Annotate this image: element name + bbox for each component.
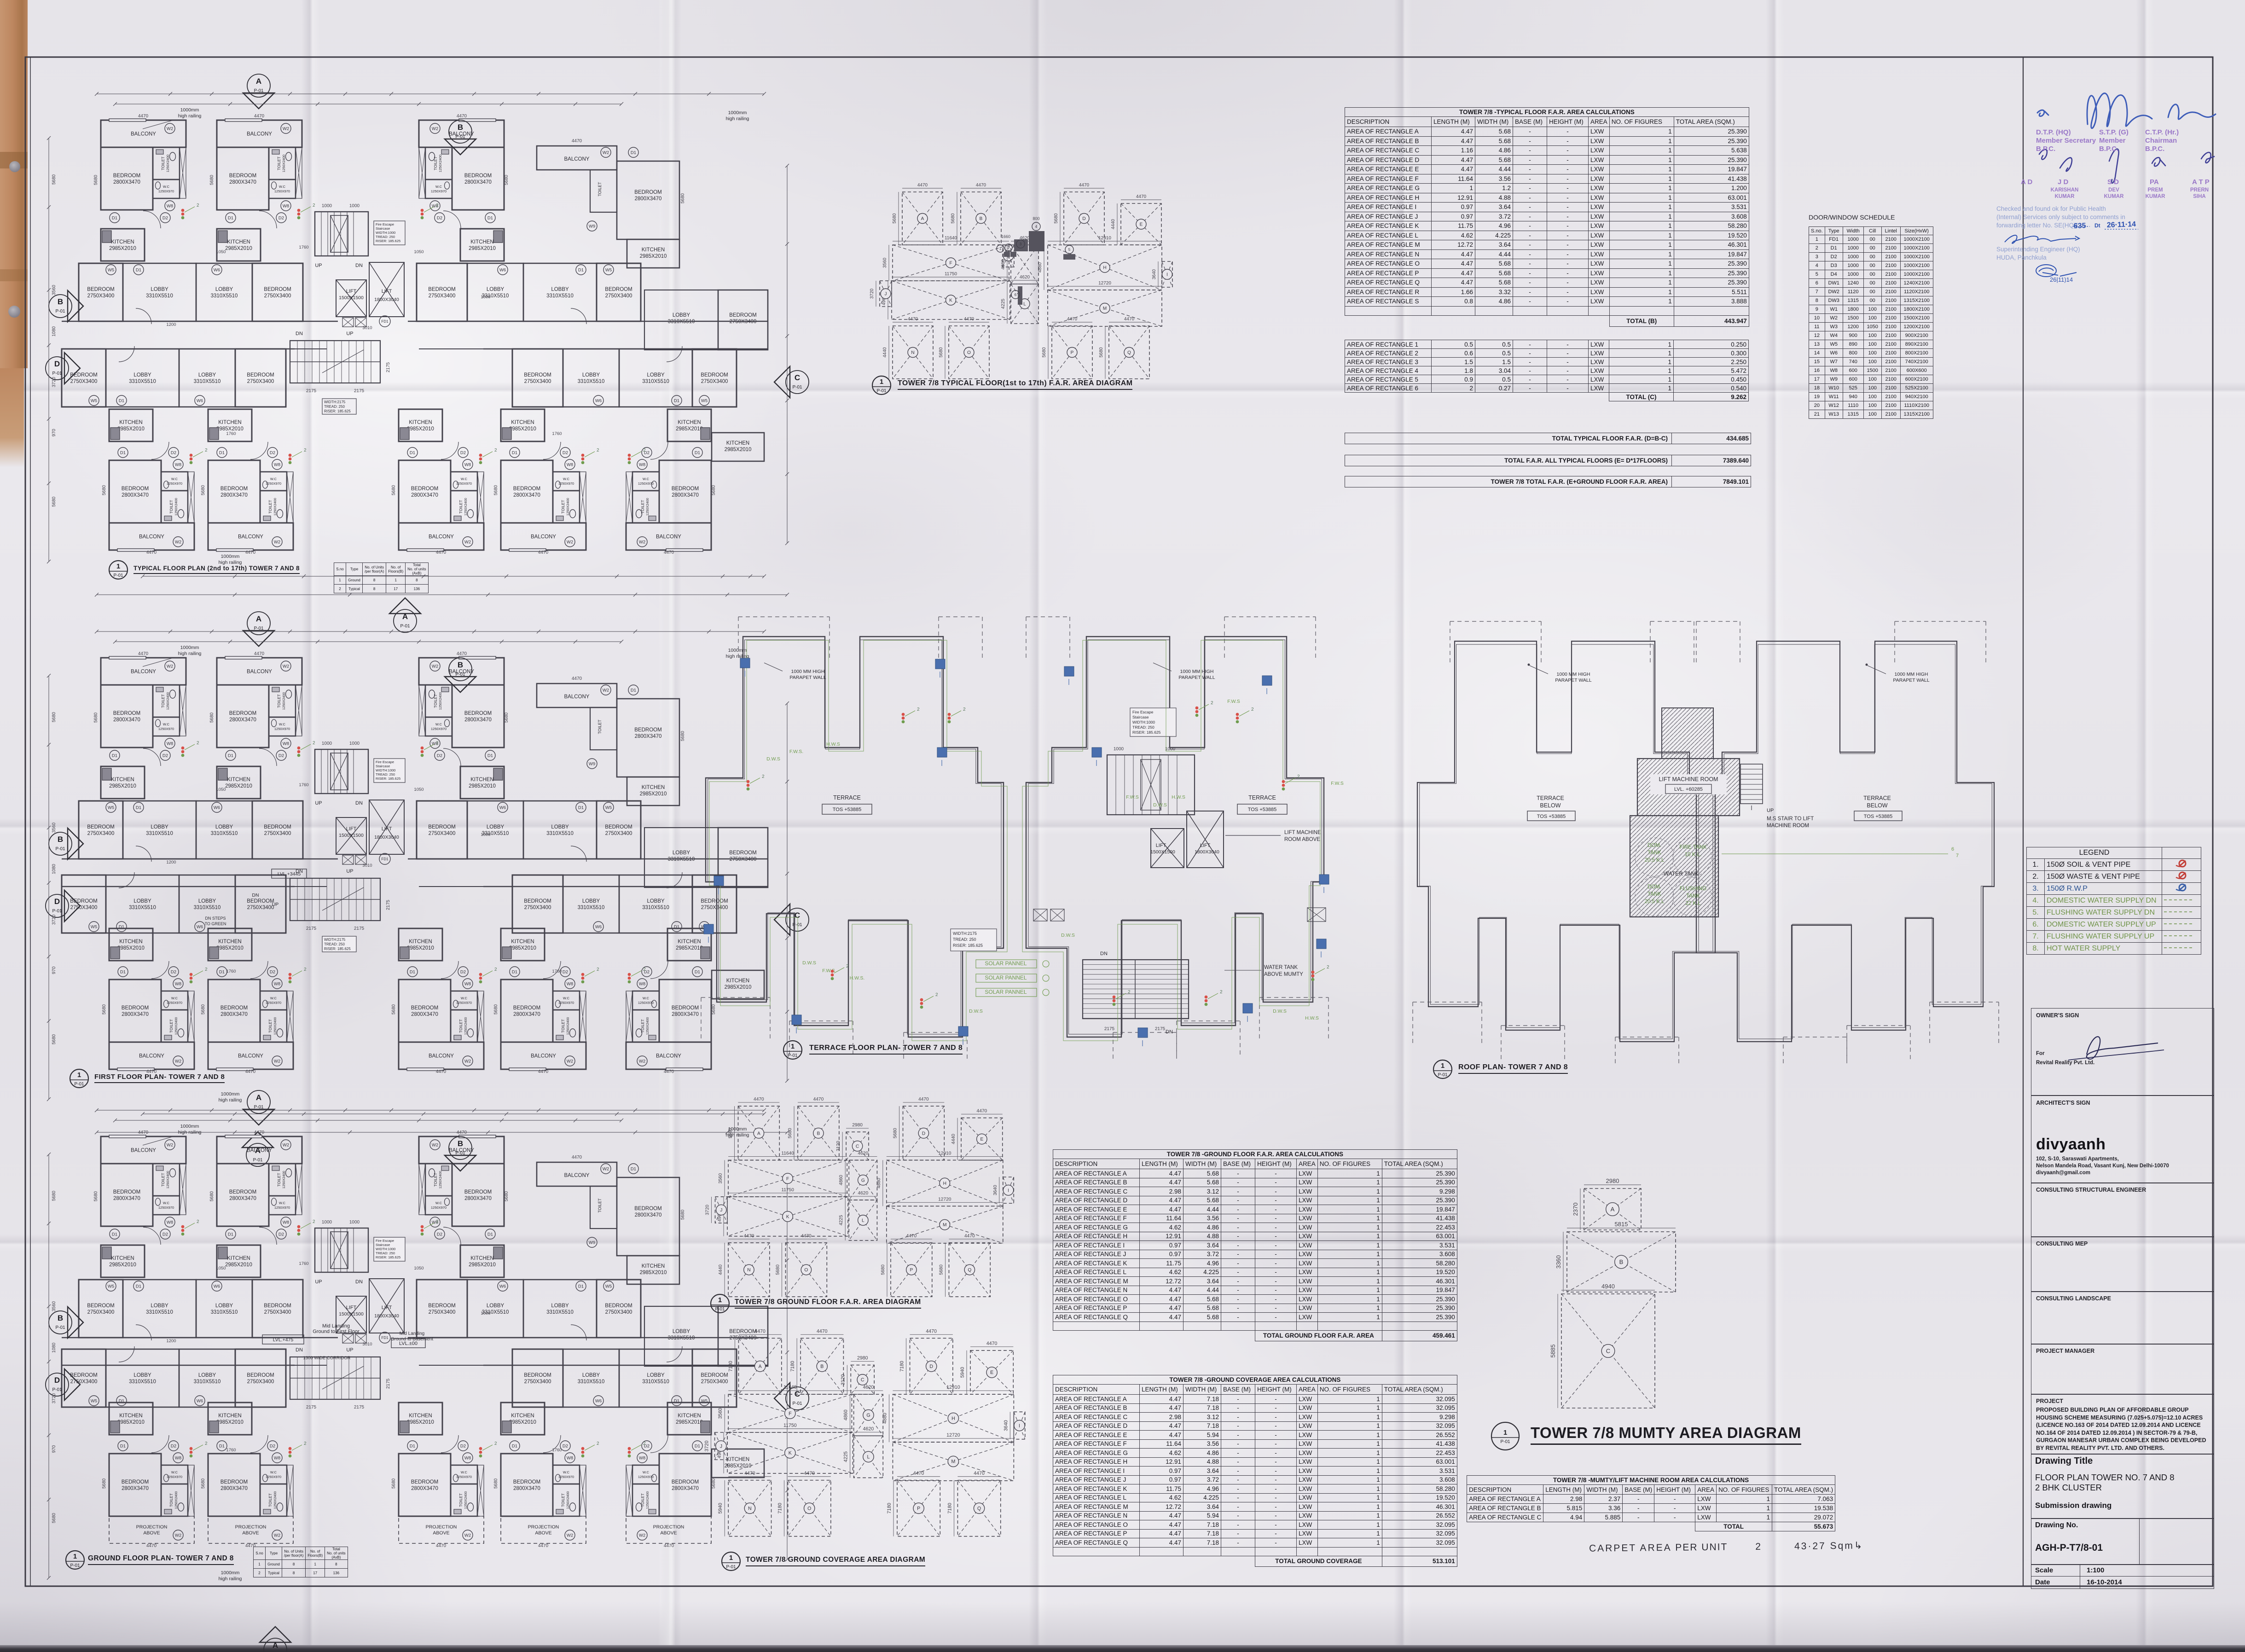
svg-text:BEDROOM: BEDROOM	[634, 190, 661, 195]
svg-text:W9: W9	[589, 224, 595, 229]
svg-text:Q: Q	[977, 1506, 981, 1511]
svg-text:TOILET: TOILET	[561, 1019, 565, 1033]
svg-text:5680: 5680	[776, 1264, 781, 1275]
svg-text:TREAD: 250: TREAD: 250	[376, 1251, 395, 1255]
svg-text:4470: 4470	[254, 114, 265, 119]
svg-text:SOLAR PANNEL: SOLAR PANNEL	[985, 974, 1027, 981]
svg-text:1250X2400: 1250X2400	[174, 1491, 178, 1509]
svg-text:H: H	[943, 1181, 946, 1186]
svg-text:11750: 11750	[783, 1423, 797, 1428]
svg-text:A: A	[1611, 1206, 1615, 1213]
svg-text:DOM.: DOM.	[1647, 843, 1661, 848]
svg-text:G: G	[866, 1413, 870, 1418]
svg-text:LOBBY: LOBBY	[215, 1303, 233, 1309]
svg-text:2750X3400: 2750X3400	[524, 1379, 551, 1385]
svg-text:5680: 5680	[680, 730, 685, 741]
svg-text:C: C	[795, 373, 800, 382]
svg-text:I: I	[1019, 1423, 1020, 1429]
svg-text:F.W.S: F.W.S	[1331, 781, 1343, 786]
svg-text:BEDROOM: BEDROOM	[264, 824, 291, 830]
svg-text:11640: 11640	[783, 1385, 797, 1390]
svg-text:4470: 4470	[964, 1234, 975, 1239]
svg-text:PROJECTION: PROJECTION	[136, 1524, 168, 1530]
svg-text:H.W.S: H.W.S	[1305, 1015, 1319, 1021]
svg-text:5680: 5680	[893, 1128, 898, 1138]
svg-text:5940: 5940	[718, 1503, 723, 1514]
svg-text:4470: 4470	[906, 1234, 917, 1239]
svg-text:D1: D1	[219, 969, 225, 974]
svg-text:W2: W2	[283, 664, 289, 669]
svg-text:2800X3470: 2800X3470	[113, 1196, 140, 1201]
svg-text:W2: W2	[567, 539, 573, 545]
svg-text:BEDROOM: BEDROOM	[729, 1329, 756, 1334]
svg-text:TOILET: TOILET	[640, 1493, 645, 1507]
svg-text:BEDROOM: BEDROOM	[524, 1373, 551, 1378]
svg-text:4470: 4470	[245, 1069, 256, 1074]
svg-text:2: 2	[917, 707, 920, 712]
svg-text:F: F	[949, 261, 952, 266]
svg-text:BEDROOM: BEDROOM	[113, 173, 140, 179]
svg-text:high railing: high railing	[178, 651, 202, 656]
svg-text:1250X2400: 1250X2400	[566, 1491, 570, 1509]
svg-text:KITCHEN: KITCHEN	[642, 1264, 665, 1269]
svg-text:UP: UP	[346, 331, 353, 336]
svg-text:1000mm: 1000mm	[180, 645, 199, 650]
svg-text:PROJECTION: PROJECTION	[528, 1524, 559, 1530]
svg-text:4470: 4470	[572, 676, 582, 681]
svg-text:7180: 7180	[947, 1503, 952, 1514]
svg-text:TREAD: 250: TREAD: 250	[376, 235, 395, 239]
svg-text:2800X3470: 2800X3470	[229, 1196, 256, 1201]
svg-text:1000: 1000	[481, 1311, 490, 1316]
svg-text:D2: D2	[278, 215, 284, 220]
svg-text:D1: D1	[219, 450, 225, 455]
svg-text:BALCONY: BALCONY	[139, 534, 164, 540]
svg-text:2: 2	[197, 203, 199, 208]
svg-text:970: 970	[52, 1445, 57, 1453]
svg-text:BALCONY: BALCONY	[247, 132, 272, 137]
svg-text:2985X2010: 2985X2010	[225, 246, 252, 251]
svg-text:2800X3470: 2800X3470	[672, 1012, 699, 1017]
svg-text:2: 2	[597, 448, 599, 453]
svg-text:1250X2400: 1250X2400	[464, 498, 468, 516]
svg-text:W2: W2	[175, 1533, 181, 1538]
svg-text:W8: W8	[274, 1455, 280, 1461]
svg-text:1050: 1050	[216, 1266, 226, 1271]
svg-text:2750X3400: 2750X3400	[701, 379, 728, 384]
svg-text:H: H	[951, 1416, 955, 1421]
svg-text:Q: Q	[968, 1268, 971, 1273]
svg-text:P-01: P-01	[52, 909, 62, 914]
svg-text:2: 2	[846, 964, 849, 969]
svg-text:4470: 4470	[917, 183, 928, 188]
svg-text:1760: 1760	[226, 431, 236, 436]
svg-text:5680: 5680	[788, 1128, 793, 1138]
svg-text:2800X3470: 2800X3470	[411, 493, 438, 498]
svg-text:Ground to Basement: Ground to Basement	[391, 1337, 433, 1342]
svg-text:A: A	[759, 1364, 762, 1369]
svg-text:1760: 1760	[552, 969, 562, 974]
svg-text:FD1: FD1	[381, 319, 389, 324]
svg-text:1000: 1000	[1114, 747, 1124, 752]
svg-text:Mid Landing: Mid Landing	[322, 1323, 350, 1329]
svg-text:F.W.S.: F.W.S.	[789, 749, 803, 754]
svg-text:4470: 4470	[1124, 317, 1135, 322]
svg-text:W6: W6	[499, 805, 506, 810]
svg-text:1250X970: 1250X970	[431, 1206, 447, 1210]
svg-text:5680: 5680	[93, 1191, 99, 1201]
svg-text:4470: 4470	[1136, 194, 1147, 199]
svg-text:2800X3470: 2800X3470	[411, 1486, 438, 1491]
svg-text:2175: 2175	[386, 899, 391, 910]
svg-text:3310X5510: 3310X5510	[642, 379, 669, 384]
svg-text:Fire Escape: Fire Escape	[376, 1239, 394, 1243]
svg-text:2: 2	[436, 203, 439, 208]
svg-text:BALCONY: BALCONY	[131, 1148, 156, 1154]
svg-text:KITCHEN: KITCHEN	[511, 1413, 534, 1419]
svg-text:2750X3400: 2750X3400	[605, 1310, 632, 1315]
svg-text:W.C: W.C	[643, 996, 650, 1000]
svg-text:6: 6	[1015, 293, 1017, 297]
svg-text:D1: D1	[695, 1443, 700, 1449]
svg-text:4880: 4880	[1038, 262, 1043, 272]
svg-text:2800X3470: 2800X3470	[113, 717, 140, 723]
svg-text:TOS +53885: TOS +53885	[833, 807, 861, 812]
svg-text:W6: W6	[214, 267, 220, 272]
svg-text:2750X3400: 2750X3400	[87, 831, 115, 836]
svg-text:Staircase: Staircase	[376, 226, 390, 231]
svg-text:E: E	[990, 1370, 993, 1375]
svg-text:D2: D2	[437, 753, 442, 758]
svg-text:TERRACE: TERRACE	[1863, 795, 1891, 801]
svg-text:2750X3400: 2750X3400	[264, 293, 291, 299]
svg-text:1250X970: 1250X970	[274, 189, 290, 193]
svg-text:P: P	[1071, 350, 1074, 355]
svg-text:P-01: P-01	[792, 1401, 802, 1406]
svg-text:BALCONY: BALCONY	[564, 157, 590, 162]
svg-text:K: K	[789, 1450, 792, 1456]
svg-text:2980: 2980	[1606, 1177, 1619, 1184]
svg-text:3310X5510: 3310X5510	[194, 905, 221, 910]
svg-text:W8: W8	[283, 1220, 289, 1225]
svg-text:W.C: W.C	[163, 1201, 170, 1205]
svg-text:1250X2400: 1250X2400	[464, 1017, 468, 1035]
svg-text:A: A	[921, 216, 924, 221]
svg-text:D1: D1	[410, 450, 415, 455]
svg-text:5680: 5680	[52, 712, 57, 722]
svg-text:BALCONY: BALCONY	[564, 1173, 590, 1178]
svg-text:DN: DN	[1166, 1029, 1173, 1035]
svg-text:1760: 1760	[299, 1261, 308, 1266]
svg-text:PROJECTION: PROJECTION	[653, 1524, 685, 1530]
svg-text:2800X3470: 2800X3470	[113, 180, 140, 185]
svg-text:2985X2010: 2985X2010	[109, 783, 136, 789]
svg-text:W.C: W.C	[279, 1201, 286, 1205]
svg-text:4470: 4470	[976, 183, 986, 188]
svg-text:A: A	[256, 77, 261, 86]
svg-text:1200: 1200	[166, 1339, 176, 1344]
svg-text:W8: W8	[567, 462, 573, 467]
svg-text:TOILET: TOILET	[561, 1493, 565, 1507]
svg-text:2985X2010: 2985X2010	[109, 246, 136, 251]
svg-text:ROOM ABOVE: ROOM ABOVE	[1284, 837, 1320, 842]
svg-text:TANK: TANK	[1686, 893, 1700, 899]
svg-text:P-01: P-01	[70, 1563, 80, 1568]
svg-text:2: 2	[643, 967, 646, 972]
svg-text:BEDROOM: BEDROOM	[87, 287, 114, 292]
svg-text:D2: D2	[278, 753, 284, 758]
svg-text:BEDROOM: BEDROOM	[264, 1303, 291, 1309]
svg-text:4470: 4470	[744, 1471, 755, 1476]
svg-text:4470: 4470	[744, 1234, 754, 1239]
svg-text:FD1: FD1	[381, 1336, 389, 1340]
svg-text:W.C: W.C	[461, 477, 468, 481]
svg-text:2: 2	[1220, 990, 1223, 995]
svg-text:7180: 7180	[777, 1503, 783, 1514]
svg-text:BEDROOM: BEDROOM	[634, 727, 661, 733]
svg-text:1000: 1000	[349, 203, 360, 209]
svg-text:1250X2400: 1250X2400	[282, 692, 286, 710]
svg-text:D1: D1	[410, 969, 415, 974]
svg-text:W6: W6	[197, 398, 203, 403]
svg-text:1050: 1050	[216, 249, 226, 255]
svg-text:D1: D1	[578, 267, 584, 272]
svg-text:KITCHEN: KITCHEN	[470, 777, 493, 783]
svg-text:TANK: TANK	[1647, 850, 1661, 856]
svg-text:H.W.S: H.W.S	[1172, 794, 1185, 800]
svg-text:BALCONY: BALCONY	[238, 1054, 263, 1059]
svg-text:BEDROOM: BEDROOM	[605, 287, 632, 292]
svg-text:W6: W6	[214, 805, 220, 810]
svg-text:2: 2	[436, 741, 439, 746]
svg-text:L: L	[862, 1218, 864, 1223]
svg-text:1250X2400: 1250X2400	[273, 1491, 277, 1509]
svg-text:4470: 4470	[977, 1109, 987, 1114]
svg-text:D.W.S: D.W.S	[1061, 933, 1075, 938]
svg-text:LIFT: LIFT	[382, 826, 392, 832]
svg-text:4225: 4225	[1001, 298, 1006, 309]
svg-text:1760: 1760	[226, 969, 236, 974]
svg-text:KITCHEN: KITCHEN	[409, 1413, 432, 1419]
svg-text:5680: 5680	[504, 174, 509, 185]
svg-text:W8: W8	[274, 981, 280, 986]
svg-text:W.C: W.C	[461, 996, 468, 1000]
svg-text:1000: 1000	[349, 1220, 360, 1225]
svg-text:D1: D1	[228, 215, 233, 220]
svg-text:BEDROOM: BEDROOM	[513, 1479, 540, 1485]
svg-text:W8: W8	[639, 981, 645, 986]
svg-text:J: J	[720, 1208, 722, 1213]
svg-text:DN: DN	[296, 331, 303, 336]
svg-text:2800X3470: 2800X3470	[513, 1486, 540, 1491]
svg-text:3120: 3120	[836, 1141, 841, 1151]
svg-text:2800X3470: 2800X3470	[513, 1012, 540, 1017]
svg-text:W.C: W.C	[643, 1470, 650, 1474]
svg-text:D1: D1	[112, 753, 117, 758]
svg-text:Ground to First Floor: Ground to First Floor	[313, 1329, 360, 1334]
svg-text:4440: 4440	[951, 1134, 956, 1144]
svg-text:RISER: 185.625: RISER: 185.625	[376, 239, 400, 243]
svg-text:W.C: W.C	[435, 722, 442, 726]
svg-text:BELOW: BELOW	[1540, 802, 1560, 809]
svg-text:2985X2010: 2985X2010	[469, 783, 496, 789]
svg-text:W5: W5	[91, 398, 97, 403]
svg-text:3310X5510: 3310X5510	[129, 905, 156, 910]
svg-text:KITCHEN: KITCHEN	[218, 939, 241, 945]
svg-text:W.C: W.C	[563, 996, 570, 1000]
svg-text:LVL.+3445: LVL.+3445	[278, 871, 301, 877]
svg-text:SOLAR PANNEL: SOLAR PANNEL	[985, 989, 1027, 995]
svg-text:4860: 4860	[839, 1175, 844, 1185]
svg-text:Fire Escape: Fire Escape	[1132, 710, 1154, 714]
svg-text:2: 2	[197, 1219, 199, 1224]
svg-text:KITCHEN: KITCHEN	[227, 1256, 250, 1261]
svg-text:2985X2010: 2985X2010	[407, 426, 434, 432]
svg-text:2800X3470: 2800X3470	[635, 196, 662, 202]
svg-text:2985X2010: 2985X2010	[109, 1262, 136, 1268]
svg-text:4470: 4470	[146, 550, 157, 555]
svg-text:BEDROOM: BEDROOM	[428, 287, 455, 292]
svg-text:1000 MM HIGH: 1000 MM HIGH	[1180, 669, 1214, 674]
svg-text:TOILET: TOILET	[640, 500, 645, 514]
svg-text:LOBBY: LOBBY	[582, 372, 600, 378]
svg-text:5680: 5680	[102, 1004, 107, 1014]
svg-text:D2: D2	[162, 1232, 168, 1237]
svg-text:5680: 5680	[93, 174, 99, 185]
svg-text:P-01: P-01	[715, 1307, 725, 1312]
svg-text:P-01: P-01	[55, 309, 65, 314]
svg-text:W.C: W.C	[643, 477, 650, 481]
svg-text:3640: 3640	[1003, 1420, 1009, 1431]
svg-text:W2: W2	[603, 150, 609, 155]
svg-text:DN: DN	[355, 263, 363, 268]
svg-text:ABOVE: ABOVE	[143, 1530, 160, 1536]
svg-text:5680: 5680	[209, 1191, 215, 1201]
svg-text:1000: 1000	[481, 832, 490, 837]
svg-text:1: 1	[718, 1296, 722, 1304]
svg-text:BEDROOM: BEDROOM	[70, 372, 97, 378]
svg-text:TOILET: TOILET	[433, 694, 438, 708]
svg-text:3310X5510: 3310X5510	[194, 1379, 221, 1385]
svg-text:5680: 5680	[493, 1478, 499, 1489]
svg-text:BALCONY: BALCONY	[131, 669, 156, 675]
svg-text:2800X3470: 2800X3470	[635, 734, 662, 739]
svg-text:UP: UP	[346, 1347, 353, 1353]
svg-text:Staircase: Staircase	[1132, 715, 1149, 719]
svg-text:1000 MM HIGH: 1000 MM HIGH	[791, 669, 825, 674]
svg-text:W5: W5	[108, 805, 114, 810]
svg-text:TREAD: 250: TREAD: 250	[324, 405, 345, 409]
svg-text:BEDROOM: BEDROOM	[701, 1373, 728, 1378]
svg-text:LIFT: LIFT	[1156, 843, 1166, 848]
svg-text:D1: D1	[120, 1443, 126, 1449]
svg-text:C: C	[795, 911, 800, 920]
svg-text:D1: D1	[512, 450, 517, 455]
svg-text:BEDROOM: BEDROOM	[464, 1189, 492, 1195]
svg-text:2800X3470: 2800X3470	[672, 493, 699, 498]
svg-text:W6: W6	[499, 1284, 506, 1289]
svg-text:4860: 4860	[843, 1409, 849, 1420]
svg-text:2: 2	[1327, 965, 1329, 970]
svg-text:2800X3470: 2800X3470	[220, 1486, 248, 1491]
svg-text:W2: W2	[274, 1533, 280, 1538]
svg-text:2: 2	[197, 741, 199, 746]
svg-text:4470: 4470	[146, 1543, 157, 1548]
svg-text:TERRACE: TERRACE	[1537, 795, 1564, 801]
svg-text:2800X3470: 2800X3470	[464, 717, 492, 723]
svg-text:2985X2010: 2985X2010	[216, 945, 244, 951]
svg-text:4470: 4470	[572, 1155, 582, 1160]
svg-text:1250X970: 1250X970	[274, 727, 290, 731]
svg-text:2985X2010: 2985X2010	[725, 1463, 752, 1469]
svg-text:W5: W5	[605, 1284, 612, 1289]
svg-text:3720: 3720	[52, 1393, 57, 1403]
svg-text:1500X1500: 1500X1500	[339, 295, 364, 301]
svg-text:5680: 5680	[1099, 347, 1104, 358]
svg-text:1000mm: 1000mm	[180, 1124, 199, 1129]
svg-text:4470: 4470	[664, 550, 674, 555]
svg-text:W6: W6	[595, 398, 602, 403]
svg-text:D1: D1	[228, 753, 233, 758]
svg-text:2985X2010: 2985X2010	[469, 246, 496, 251]
svg-text:2800X3470: 2800X3470	[464, 180, 492, 185]
svg-text:M: M	[943, 1223, 947, 1228]
svg-text:5940: 5940	[960, 1367, 965, 1378]
svg-text:5680: 5680	[93, 712, 99, 723]
svg-text:BEDROOM: BEDROOM	[229, 173, 256, 179]
svg-text:RISER: 185.625: RISER: 185.625	[1132, 730, 1161, 735]
svg-text:W.C: W.C	[461, 1470, 468, 1474]
svg-text:W8: W8	[175, 462, 181, 467]
svg-text:K: K	[949, 298, 952, 303]
svg-text:2985X2010: 2985X2010	[407, 945, 434, 951]
svg-text:BALCONY: BALCONY	[564, 694, 590, 700]
svg-text:5680: 5680	[52, 1513, 57, 1523]
svg-text:MACHINE ROOM: MACHINE ROOM	[1767, 823, 1809, 829]
svg-text:2750X3400: 2750X3400	[524, 905, 551, 910]
svg-text:BEDROOM: BEDROOM	[229, 1189, 256, 1195]
svg-text:7: 7	[1956, 853, 1959, 858]
svg-text:TOS +53885: TOS +53885	[1537, 814, 1566, 819]
svg-text:1250X970: 1250X970	[274, 1206, 290, 1210]
svg-text:J: J	[885, 292, 887, 297]
svg-text:F: F	[786, 1177, 789, 1182]
svg-text:W.C: W.C	[171, 477, 178, 481]
svg-text:1: 1	[116, 562, 120, 570]
svg-text:5680: 5680	[939, 347, 944, 358]
svg-text:LOBBY: LOBBY	[151, 287, 168, 292]
svg-text:BEDROOM: BEDROOM	[411, 1479, 438, 1485]
svg-text:A: A	[256, 1093, 261, 1102]
svg-text:2985X2010: 2985X2010	[676, 426, 703, 432]
svg-text:BALCONY: BALCONY	[247, 1148, 272, 1154]
svg-text:D1: D1	[512, 1443, 517, 1449]
svg-text:BEDROOM: BEDROOM	[264, 287, 291, 292]
svg-text:2800X3470: 2800X3470	[229, 717, 256, 723]
svg-text:11640: 11640	[945, 236, 957, 241]
svg-text:4470: 4470	[813, 1097, 824, 1102]
svg-text:WIDTH:2175: WIDTH:2175	[953, 931, 977, 936]
svg-text:3640: 3640	[993, 1185, 998, 1195]
svg-text:2: 2	[643, 448, 646, 453]
svg-text:KITCHEN: KITCHEN	[726, 1457, 749, 1462]
svg-text:O: O	[804, 1268, 808, 1273]
svg-text:KITCHEN: KITCHEN	[511, 420, 534, 425]
svg-text:2: 2	[205, 448, 208, 453]
svg-text:2: 2	[205, 1441, 208, 1446]
svg-text:W2: W2	[432, 126, 438, 131]
svg-text:BEDROOM: BEDROOM	[411, 486, 438, 492]
